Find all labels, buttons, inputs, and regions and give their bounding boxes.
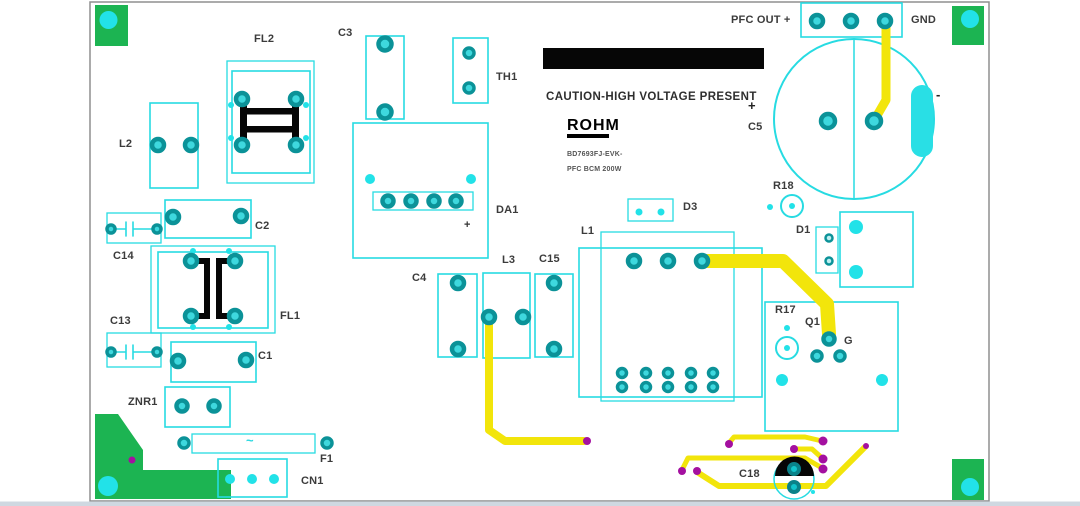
- refdes-d3: D3: [683, 201, 697, 213]
- refdes-l1: L1: [581, 225, 594, 237]
- refdes-znr1: ZNR1: [128, 396, 158, 408]
- r17-dot: [784, 325, 790, 331]
- refdes-c5: C5: [748, 121, 762, 133]
- refdes-c3: C3: [338, 27, 352, 39]
- refdes-l3: L3: [502, 254, 515, 266]
- refdes-c13: C13: [110, 315, 131, 327]
- refdes-q1: Q1: [805, 316, 820, 328]
- rohm-logo-text: ROHM: [567, 119, 620, 133]
- pcb-layout-screenshot: PFC OUT + GND CAUTION-HIGH VOLTAGE PRESE…: [0, 0, 1080, 506]
- label-c5-minus: -: [936, 87, 941, 102]
- refdes-cn1: CN1: [301, 475, 324, 487]
- label-caution: CAUTION-HIGH VOLTAGE PRESENT: [546, 91, 757, 103]
- via-ground-pour: [129, 457, 136, 464]
- label-model: BD7693FJ-EVK-: [567, 151, 623, 158]
- label-gnd: GND: [911, 14, 936, 26]
- f1-fuse-symbol: ~: [246, 433, 254, 448]
- refdes-c1: C1: [258, 350, 272, 362]
- rohm-logo-bar: [567, 134, 609, 138]
- label-c5-plus: +: [748, 98, 756, 113]
- refdes-c15: C15: [539, 253, 560, 265]
- label-pfc-out: PFC OUT +: [731, 14, 791, 26]
- refdes-da1: DA1: [496, 204, 519, 216]
- c5-minus-stripe: [911, 85, 933, 157]
- refdes-c18: C18: [739, 468, 760, 480]
- mount-hole-bottom-right: [961, 478, 979, 496]
- mount-hole-top-right: [961, 10, 979, 28]
- refdes-g: G: [844, 335, 853, 347]
- silkscreen-black-bar: [543, 48, 764, 69]
- mount-hole-top-left: [100, 11, 118, 29]
- refdes-f1: F1: [320, 453, 333, 465]
- refdes-c14: C14: [113, 250, 134, 262]
- refdes-fl2: FL2: [254, 33, 274, 45]
- label-da1-plus: +: [464, 219, 471, 231]
- refdes-l2: L2: [119, 138, 132, 150]
- refdes-d1: D1: [796, 224, 810, 236]
- mount-hole-bottom-left: [98, 476, 118, 496]
- q1-gate-pad: [824, 334, 835, 345]
- refdes-th1: TH1: [496, 71, 517, 83]
- rohm-logo: ROHM: [567, 119, 620, 138]
- c5-pad-left: [821, 114, 835, 128]
- l1-pad-3: [696, 255, 708, 267]
- c5-pad-right: [867, 114, 881, 128]
- label-power-rating: PFC BCM 200W: [567, 166, 622, 173]
- refdes-r17: R17: [775, 304, 796, 316]
- refdes-r18: R18: [773, 180, 794, 192]
- bottom-edge-strip: [0, 502, 1080, 506]
- refdes-c4: C4: [412, 272, 426, 284]
- refdes-c2: C2: [255, 220, 269, 232]
- pfc-out-pad-3: [879, 15, 891, 27]
- component-c5: [774, 39, 934, 199]
- refdes-fl1: FL1: [280, 310, 300, 322]
- l3-pad-left: [483, 311, 495, 323]
